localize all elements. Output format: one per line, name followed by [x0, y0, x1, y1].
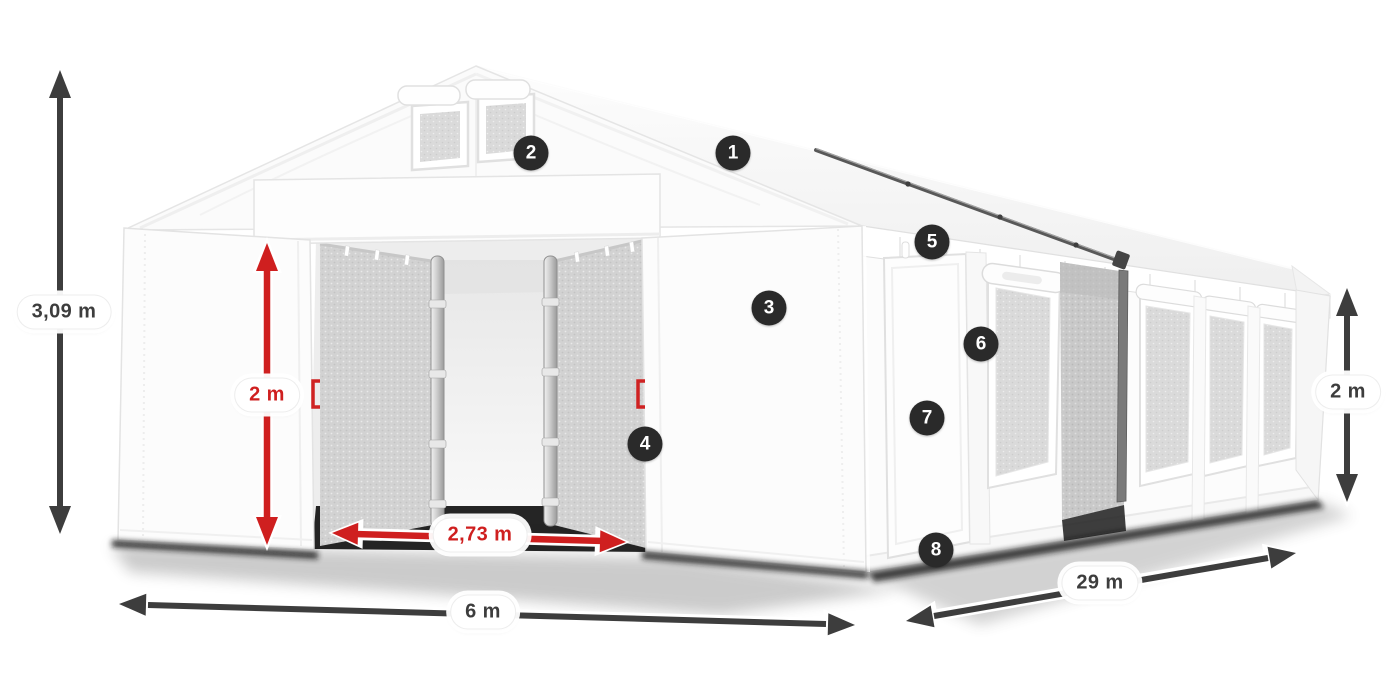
- callout-5[interactable]: 5: [915, 225, 950, 260]
- tent-diagram: 1 2 3 4 5 6 7 8 3,09 m 2 m 2,73 m 6 m 29…: [0, 0, 1400, 700]
- mesh-door-right: [550, 240, 646, 548]
- door-frame-pole-right: [542, 256, 559, 526]
- vent-roll-bar: [466, 80, 530, 99]
- mesh-door-left: [320, 244, 438, 546]
- dim-ridge-height: 3,09 m: [18, 296, 111, 329]
- vent-roll-bar: [398, 86, 460, 105]
- callout-1[interactable]: 1: [716, 136, 751, 171]
- callout-4[interactable]: 4: [628, 427, 663, 462]
- side-door: [884, 239, 990, 558]
- callout-2[interactable]: 2: [514, 136, 549, 171]
- dim-span-width: 6 m: [451, 596, 515, 629]
- entrance-lintel: [254, 174, 660, 244]
- tent-illustration: [0, 0, 1400, 700]
- callout-8[interactable]: 8: [919, 533, 954, 568]
- callout-6[interactable]: 6: [964, 327, 999, 362]
- entrance-opening: [310, 236, 652, 554]
- front-wall-right: [642, 226, 866, 572]
- door-frame-pole-left: [429, 256, 446, 528]
- side-window-1: [981, 262, 1067, 488]
- callout-7[interactable]: 7: [910, 401, 945, 436]
- dim-length: 29 m: [1062, 567, 1137, 600]
- corner-pole: [1117, 270, 1128, 502]
- dim-entrance-height: 2 m: [235, 379, 299, 412]
- dim-entrance-width: 2,73 m: [434, 519, 527, 552]
- callout-3[interactable]: 3: [752, 291, 787, 326]
- dim-side-height: 2 m: [1316, 376, 1380, 409]
- open-section: [1060, 262, 1128, 541]
